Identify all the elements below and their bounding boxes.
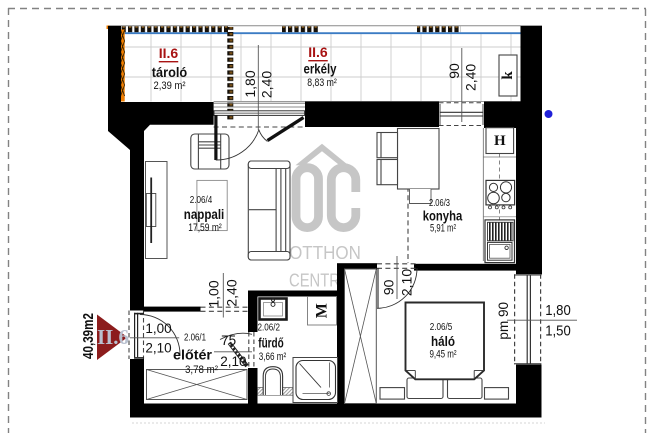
svg-text:pm 90: pm 90	[496, 302, 511, 340]
svg-text:17,59 m²: 17,59 m²	[188, 222, 222, 234]
svg-text:2,39 m²: 2,39 m²	[154, 80, 186, 92]
svg-text:nappali: nappali	[184, 207, 225, 222]
svg-text:2,40: 2,40	[224, 279, 240, 306]
svg-text:3,66 m²: 3,66 m²	[259, 351, 287, 363]
svg-text:2,40: 2,40	[259, 71, 275, 98]
svg-text:90: 90	[446, 63, 462, 79]
svg-text:8,83 m²: 8,83 m²	[307, 77, 337, 89]
svg-text:1,50: 1,50	[545, 323, 571, 340]
svg-text:II.6: II.6	[159, 45, 179, 61]
svg-text:1,00: 1,00	[206, 280, 222, 307]
svg-text:H: H	[494, 133, 506, 149]
svg-text:90: 90	[381, 279, 397, 295]
svg-text:OTTHON: OTTHON	[289, 242, 361, 263]
svg-text:II.6: II.6	[308, 44, 328, 60]
svg-text:1,00: 1,00	[145, 321, 171, 336]
svg-text:2.06/1: 2.06/1	[184, 333, 206, 344]
svg-text:előtér: előtér	[173, 348, 213, 363]
svg-text:erkély: erkély	[304, 62, 337, 77]
svg-text:1,80: 1,80	[242, 70, 258, 97]
svg-text:75: 75	[221, 333, 236, 348]
svg-text:2,10: 2,10	[220, 354, 246, 369]
svg-text:tároló: tároló	[152, 65, 188, 80]
svg-text:M: M	[313, 303, 330, 318]
svg-text:2,10: 2,10	[399, 269, 415, 296]
svg-text:2,40: 2,40	[463, 64, 479, 91]
svg-text:3,78 m²: 3,78 m²	[185, 364, 218, 376]
svg-text:5,91 m²: 5,91 m²	[430, 223, 456, 235]
svg-text:2.06/2: 2.06/2	[258, 323, 281, 334]
svg-text:konyha: konyha	[423, 208, 463, 223]
svg-text:háló: háló	[431, 334, 455, 349]
svg-text:40,39m2: 40,39m2	[80, 313, 97, 359]
svg-text:k: k	[500, 71, 516, 80]
svg-text:2,10: 2,10	[145, 341, 171, 356]
svg-text:2.06/4: 2.06/4	[190, 195, 213, 206]
svg-text:II.6: II.6	[97, 325, 129, 349]
svg-text:2.06/5: 2.06/5	[430, 322, 453, 333]
svg-text:9,45 m²: 9,45 m²	[430, 348, 457, 360]
svg-text:fürdő: fürdő	[258, 336, 284, 351]
svg-text:1,80: 1,80	[545, 302, 571, 319]
